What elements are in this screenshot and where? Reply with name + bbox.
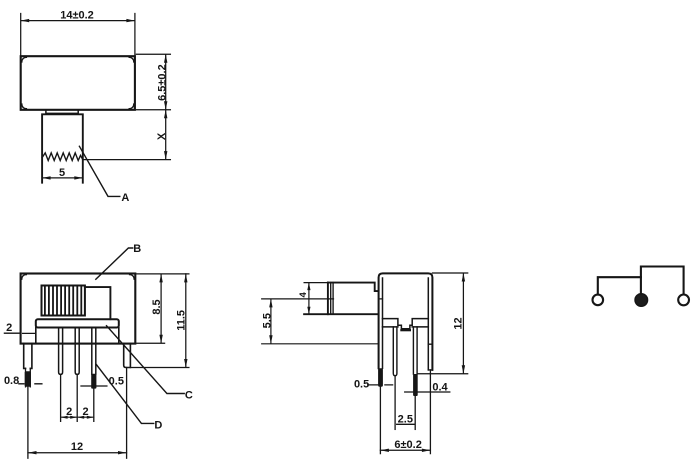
svg-text:6±0.2: 6±0.2 <box>394 439 421 451</box>
svg-text:2: 2 <box>66 406 72 418</box>
svg-text:D: D <box>154 419 162 431</box>
svg-text:0.4: 0.4 <box>432 381 448 393</box>
svg-text:8.5: 8.5 <box>151 299 163 314</box>
svg-text:X: X <box>156 132 168 140</box>
svg-text:14±0.2: 14±0.2 <box>60 10 94 22</box>
svg-text:12: 12 <box>71 441 83 453</box>
svg-text:4: 4 <box>298 291 309 297</box>
svg-text:0.5: 0.5 <box>354 378 369 390</box>
svg-text:B: B <box>133 243 141 255</box>
svg-text:11.5: 11.5 <box>176 310 188 331</box>
svg-text:6.5±0.2: 6.5±0.2 <box>156 64 168 101</box>
svg-text:0.8: 0.8 <box>4 375 19 387</box>
svg-text:12: 12 <box>453 317 465 329</box>
svg-text:5.5: 5.5 <box>262 313 274 328</box>
svg-text:5: 5 <box>59 167 65 179</box>
svg-text:2: 2 <box>6 322 12 334</box>
svg-text:2: 2 <box>83 406 89 418</box>
svg-text:C: C <box>185 389 193 401</box>
svg-text:A: A <box>121 192 129 204</box>
svg-text:0.5: 0.5 <box>109 375 124 387</box>
